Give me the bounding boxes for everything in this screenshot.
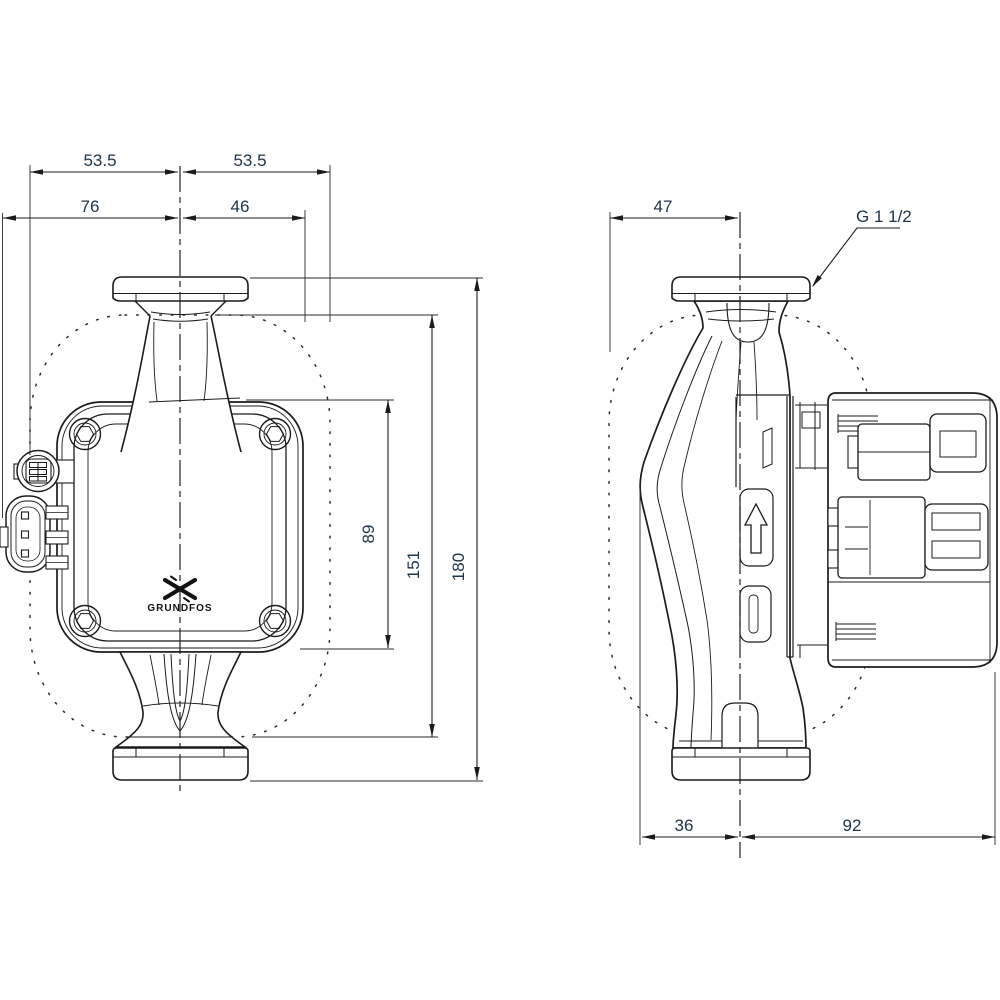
connector-plug-upper	[848, 414, 986, 480]
pump-neck-upper	[121, 301, 241, 452]
dim-overall-width-left: 76	[81, 197, 100, 216]
pump-body-side	[640, 301, 806, 748]
oval-connector-fingers	[46, 506, 68, 569]
dim-port-to-port: 180	[449, 553, 468, 581]
vertical-dimension-lines	[388, 278, 477, 780]
inlet-flange-side	[672, 277, 810, 301]
dim-foot-depth: 36	[675, 816, 694, 835]
connector-plug-lower	[828, 497, 988, 578]
dim-half-width-left: 53.5	[83, 151, 116, 170]
outlet-flange-side	[672, 748, 810, 780]
side-view: G 1 1/2 47 36 92	[609, 197, 997, 858]
dim-housing-height: 151	[404, 551, 423, 579]
dim-rear-depth: 92	[843, 816, 862, 835]
connection-size-label: G 1 1/2	[856, 207, 912, 226]
technical-drawing-page: GRUNDFOS	[0, 0, 1000, 1000]
oval-connector-tab	[0, 527, 8, 547]
front-view: GRUNDFOS	[0, 151, 483, 795]
connection-size-callout: G 1 1/2	[812, 207, 912, 287]
dim-overall-width-right: 46	[231, 197, 250, 216]
dim-front-depth: 47	[654, 197, 673, 216]
pump-dimensional-drawing: GRUNDFOS	[0, 0, 1000, 1000]
horizontal-dimension-lines	[3, 172, 330, 218]
mounting-bracket	[795, 402, 827, 658]
dim-half-width-right: 53.5	[233, 151, 266, 170]
dim-control-box-height: 89	[359, 525, 378, 544]
motor-box	[795, 393, 997, 667]
